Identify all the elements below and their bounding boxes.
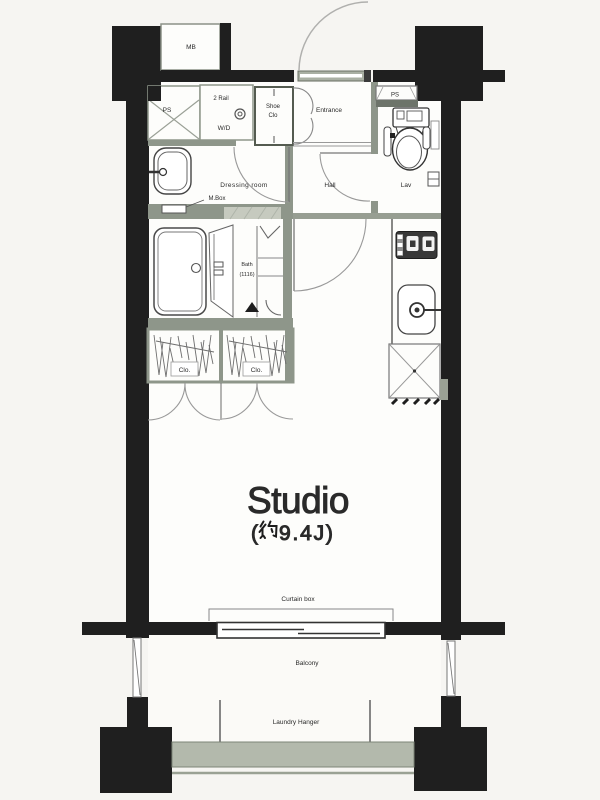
svg-text:Clo: Clo — [268, 113, 278, 119]
svg-text:Lav: Lav — [401, 182, 412, 189]
svg-text:Dressing room: Dressing room — [220, 182, 267, 189]
svg-text:M.Box: M.Box — [208, 196, 225, 202]
svg-text:Shoe: Shoe — [266, 104, 281, 110]
svg-text:Balcony: Balcony — [295, 660, 319, 667]
svg-text:Clo.: Clo. — [251, 367, 263, 374]
svg-text:Studio: Studio — [247, 480, 349, 521]
svg-text:Clo.: Clo. — [179, 367, 191, 374]
svg-text:PS: PS — [163, 107, 172, 114]
svg-text:Hall: Hall — [324, 182, 336, 189]
svg-text:Entrance: Entrance — [316, 107, 342, 114]
svg-text:(: ( — [251, 522, 258, 545]
svg-text:2 Rail: 2 Rail — [213, 96, 228, 102]
svg-text:Laundry Hanger: Laundry Hanger — [273, 719, 320, 726]
svg-text:PS: PS — [391, 93, 399, 99]
svg-text:W/D: W/D — [218, 125, 231, 132]
svg-text:MB: MB — [186, 44, 196, 51]
svg-text:(1116): (1116) — [239, 272, 254, 278]
svg-text:9.4J): 9.4J) — [279, 522, 335, 545]
svg-text:Bath: Bath — [241, 262, 252, 268]
svg-text:Curtain box: Curtain box — [281, 596, 315, 603]
